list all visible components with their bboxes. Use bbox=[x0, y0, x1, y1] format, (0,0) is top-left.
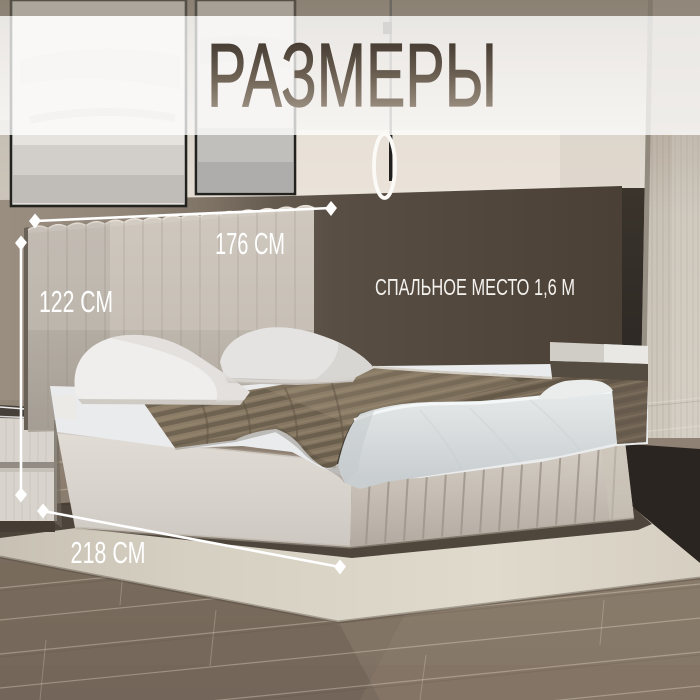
svg-text:176 СМ: 176 СМ bbox=[215, 226, 285, 261]
svg-text:122 СМ: 122 СМ bbox=[39, 284, 113, 319]
svg-text:РАЗМЕРЫ: РАЗМЕРЫ bbox=[207, 26, 497, 126]
svg-text:218 СМ: 218 СМ bbox=[71, 535, 146, 570]
svg-text:СПАЛЬНОЕ МЕСТО 1,6 М: СПАЛЬНОЕ МЕСТО 1,6 М bbox=[375, 274, 575, 300]
